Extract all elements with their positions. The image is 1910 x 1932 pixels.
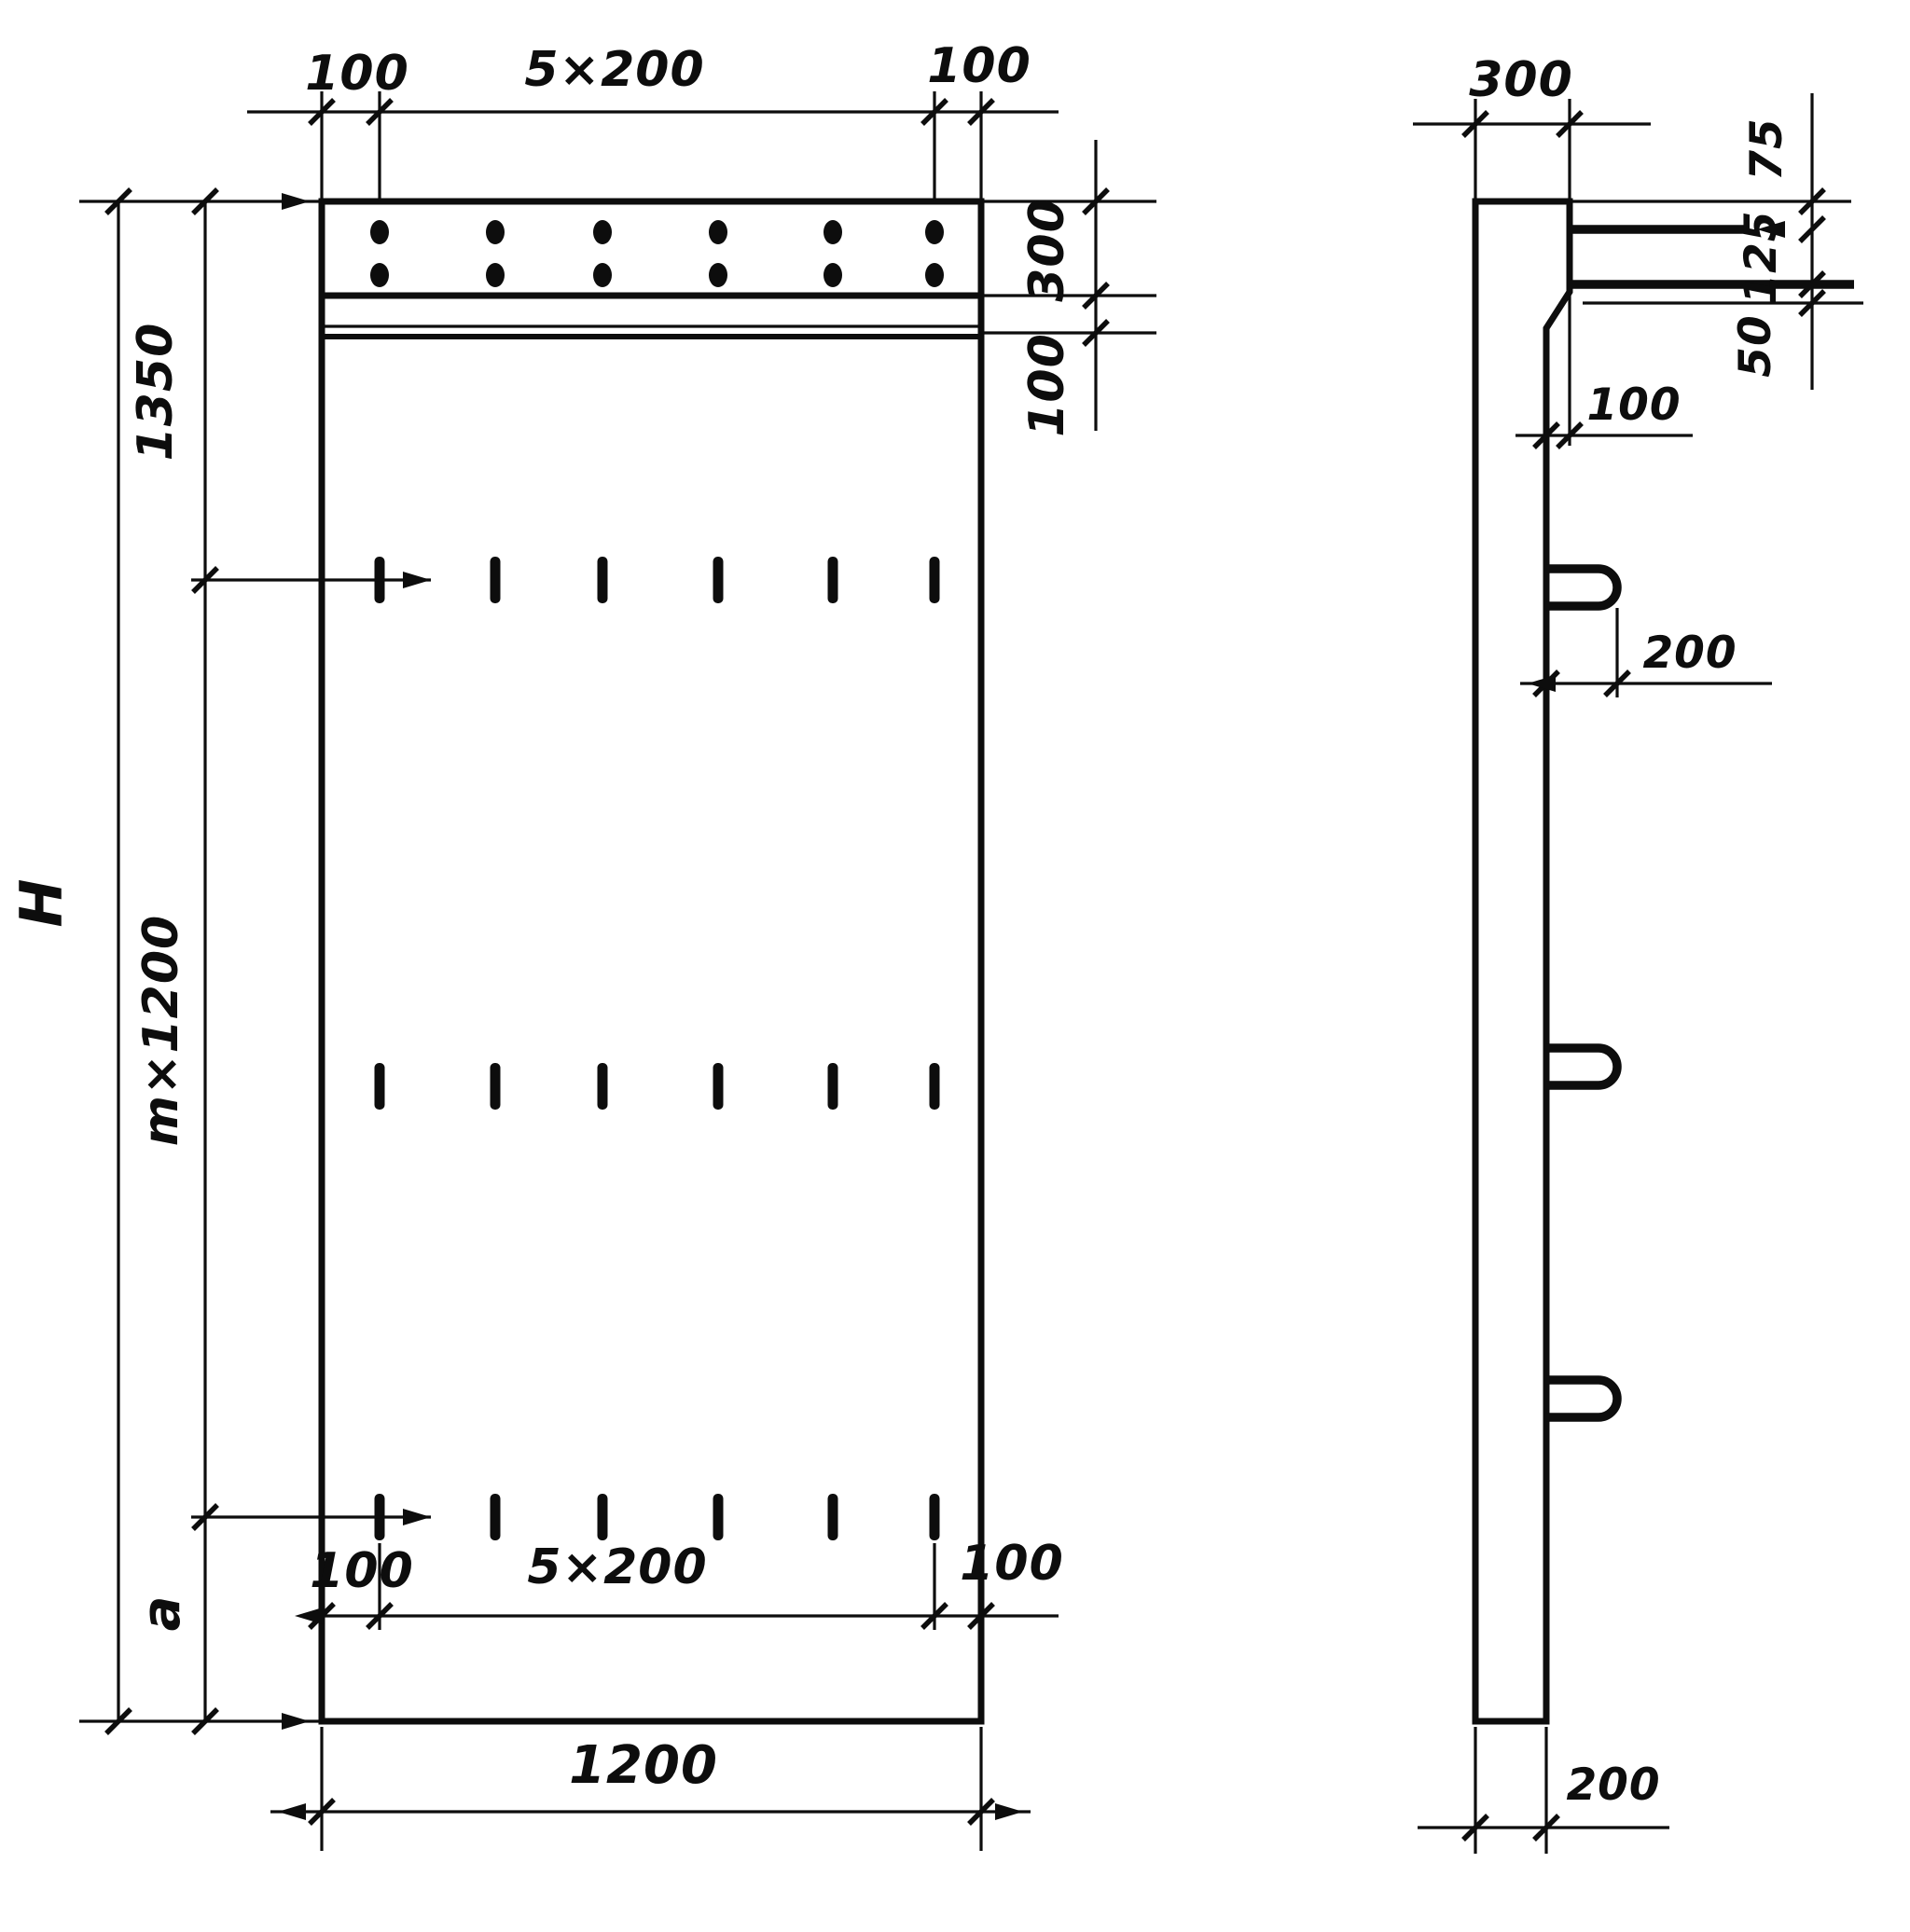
anchor-dot <box>593 263 612 287</box>
insert-dash <box>930 1494 940 1540</box>
arrowhead <box>282 1713 310 1730</box>
dim-top-spacing-label: 5×200 <box>524 42 704 98</box>
arrowhead <box>282 193 310 210</box>
dim-total-height-label: H <box>7 878 76 928</box>
insert-dash-rows <box>375 557 940 1540</box>
dim-strip-gap-label: 100 <box>1019 333 1075 437</box>
insert-dash <box>491 1494 501 1540</box>
anchor-dot <box>824 263 842 287</box>
drawing-canvas: 100 5×200 100 300 100 1350 H m×1200 a <box>0 0 1910 1932</box>
arrowhead <box>995 1803 1023 1820</box>
dim-head-depth-label: 300 <box>1469 52 1573 108</box>
insert-dash <box>598 557 608 603</box>
dim-dowel-top-offset-label: 75 <box>1741 117 1792 180</box>
arrowhead <box>403 572 431 588</box>
arrowhead <box>278 1803 306 1820</box>
dim-top-right-margin-label: 100 <box>927 38 1031 94</box>
insert-dash <box>491 557 501 603</box>
dim-bottom-chain: 100 5×200 100 1200 <box>270 1536 1064 1851</box>
dim-bottom-right-margin-label: 100 <box>960 1536 1064 1592</box>
dim-band-height-label: 300 <box>1019 198 1075 302</box>
insert-dash <box>713 1063 724 1110</box>
insert-dash <box>930 557 940 603</box>
anchor-dot <box>486 220 505 244</box>
insert-dash <box>828 1494 838 1540</box>
insert-dash <box>598 1063 608 1110</box>
dim-head-depth: 300 <box>1413 52 1651 200</box>
lifting-loop <box>1546 1380 1617 1417</box>
dim-module-zone-label: m×1200 <box>133 915 189 1146</box>
dim-bottom-left-margin-label: 100 <box>310 1543 414 1599</box>
dim-dowel-stack: 75 125 50 <box>1730 93 1812 390</box>
dim-lower-zone-label: a <box>131 1595 192 1632</box>
insert-dash <box>598 1494 608 1540</box>
insert-dash <box>828 557 838 603</box>
dim-panel-thickness-label: 200 <box>1566 1759 1660 1811</box>
dim-dowel-bottom-offset-label: 50 <box>1730 314 1781 377</box>
anchor-dot <box>593 220 612 244</box>
dim-upper-zone-label: 1350 <box>128 323 184 462</box>
insert-dash <box>930 1063 940 1110</box>
insert-dash <box>491 1063 501 1110</box>
panel-outline <box>322 201 981 1721</box>
dim-step-offset-label: 100 <box>1586 379 1681 431</box>
arrowhead <box>295 1608 323 1624</box>
dim-panel-thickness: 200 <box>1418 1727 1669 1854</box>
anchor-dot <box>370 263 389 287</box>
dim-loop-protrusion-label: 200 <box>1642 628 1737 679</box>
dim-bottom-spacing-label: 5×200 <box>527 1539 707 1595</box>
anchor-dot <box>709 220 727 244</box>
anchor-dot <box>824 220 842 244</box>
anchor-dots <box>370 220 944 287</box>
side-view: 75 125 50 300 100 200 <box>1413 52 1863 1854</box>
panel-drawing: 100 5×200 100 300 100 1350 H m×1200 a <box>0 0 1910 1932</box>
front-view: 100 5×200 100 300 100 1350 H m×1200 a <box>7 38 1156 1851</box>
dim-right-chain: 300 100 <box>984 140 1156 437</box>
dim-top-left-margin-label: 100 <box>305 46 409 102</box>
anchor-dot <box>925 263 944 287</box>
anchor-dot <box>709 263 727 287</box>
dim-step-offset: 100 <box>1516 292 1693 446</box>
dim-overall-width-label: 1200 <box>569 1735 718 1796</box>
lifting-loop <box>1546 1048 1617 1085</box>
anchor-band <box>322 296 981 337</box>
insert-dash <box>713 557 724 603</box>
lifting-loop <box>1546 569 1617 606</box>
anchor-dot <box>925 220 944 244</box>
dim-loop-protrusion: 200 <box>1520 608 1772 697</box>
insert-dash <box>828 1063 838 1110</box>
arrowhead <box>403 1509 431 1525</box>
top-dowels <box>1570 201 1863 303</box>
anchor-dot <box>370 220 389 244</box>
insert-dash <box>375 1063 385 1110</box>
anchor-dot <box>486 263 505 287</box>
dim-left-chain: 1350 H m×1200 a <box>7 201 431 1721</box>
insert-dash <box>713 1494 724 1540</box>
